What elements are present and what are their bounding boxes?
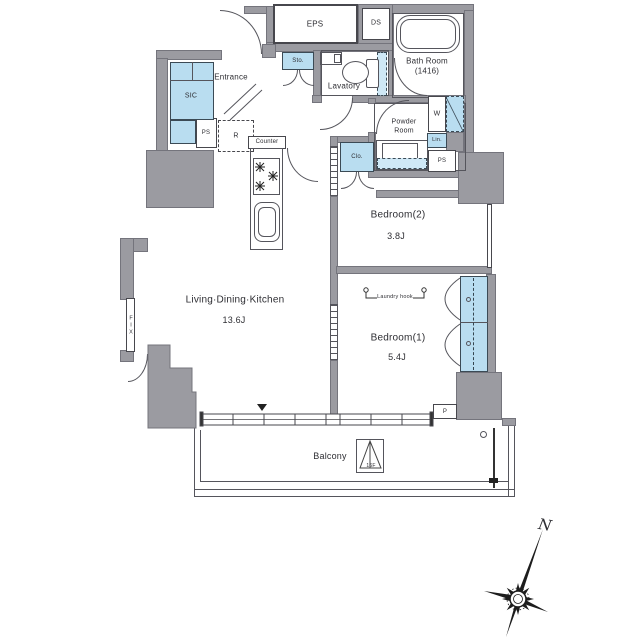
wall <box>330 196 338 306</box>
counter-label: Counter <box>256 139 279 145</box>
balcony-rail-line <box>194 496 515 497</box>
ps-label: PS <box>202 130 210 136</box>
closet2-door-arc <box>341 172 357 189</box>
balcony-window-band <box>200 412 433 426</box>
lavatory-faucet <box>334 54 341 63</box>
kitchen-sink-inner <box>258 207 276 237</box>
balcony-floor-line <box>200 481 509 482</box>
bedroom2-label: Bedroom(2) <box>371 210 426 221</box>
closet-fold-doors <box>445 278 460 366</box>
bath-size-label: (1416) <box>415 67 439 76</box>
entrance-label: Entrance <box>214 73 248 82</box>
bedroom1-size-label: 5.4J <box>388 352 406 362</box>
evac-hatch-label: 16F <box>366 463 375 469</box>
ldk-side-door-arc <box>128 354 148 382</box>
compass-icon <box>484 529 548 637</box>
bedroom2-size-label: 3.8J <box>387 231 405 241</box>
hall-door-arc <box>287 148 318 182</box>
balcony-edge <box>194 426 195 497</box>
powder-room-label: Powder <box>392 119 417 126</box>
bath-label: Bath Room <box>406 57 448 66</box>
wall <box>156 58 168 152</box>
balcony-rail-line <box>194 489 515 490</box>
stepped-wall <box>148 345 196 428</box>
entrance-step-lines <box>224 84 262 120</box>
balcony-edge <box>508 426 509 497</box>
washer-pan <box>446 96 464 132</box>
sic-label: SIC <box>185 93 197 100</box>
ps-label-2: PS <box>438 158 446 164</box>
wall-column <box>456 372 502 420</box>
compass-north-label: N <box>537 515 553 535</box>
bedroom2-window <box>487 204 492 268</box>
washer-label: W <box>434 111 441 118</box>
ldk-size-label: 13.6J <box>222 315 245 325</box>
bedroom1-label: Bedroom(1) <box>371 333 426 344</box>
wall <box>376 190 466 198</box>
balcony-drain <box>480 431 487 438</box>
storage-door-arc <box>299 70 314 86</box>
wall <box>146 150 214 208</box>
bathtub-inner <box>400 19 456 49</box>
lavatory-door-arc <box>320 98 353 130</box>
lavatory-label: Lavatory <box>328 82 360 91</box>
closet2-door-arc <box>358 172 374 189</box>
closet-divider <box>460 322 488 323</box>
floor-plan: EPS DS Bath Room (1416) Sto. Lavatory En… <box>0 0 640 639</box>
entrance-door-arc <box>220 10 262 54</box>
fix-window-label: FIX <box>128 316 134 337</box>
storage-door-arc <box>283 70 298 86</box>
sliding-door-bedroom2 <box>330 146 338 196</box>
laundry-hook-label: Laundry hook <box>377 294 413 300</box>
refrigerator-label: R <box>233 133 238 140</box>
wall <box>244 6 268 14</box>
closet-knob <box>466 341 471 346</box>
wall <box>502 418 516 426</box>
sic-divider <box>170 80 214 81</box>
sliding-door-bedroom1 <box>330 304 338 360</box>
wall <box>262 44 276 58</box>
wall <box>330 360 338 418</box>
balcony-edge <box>200 430 201 482</box>
balcony-entry-marker <box>257 404 267 411</box>
closet-knob <box>466 297 471 302</box>
ldk-label: Living·Dining·Kitchen <box>186 295 285 306</box>
vanity-lower <box>377 158 427 169</box>
closet-bedroom1 <box>460 276 488 372</box>
linen-label: Lin. <box>432 137 442 143</box>
eps-label: EPS <box>307 20 324 29</box>
ds-label: DS <box>371 20 381 27</box>
wall <box>336 266 492 274</box>
sic-closet-lower <box>170 120 196 144</box>
wall <box>120 238 134 300</box>
balcony-label: Balcony <box>313 451 346 461</box>
stove <box>253 158 280 195</box>
balcony-edge <box>514 426 515 497</box>
powder-room-label-2: Room <box>394 128 413 135</box>
closet-rail <box>473 278 474 370</box>
p-label: P <box>443 409 447 415</box>
storage-label: Sto. <box>292 58 303 64</box>
sic-divider <box>192 62 193 80</box>
closet-label: Clo. <box>351 154 362 160</box>
balcony-drain-mark <box>489 478 498 483</box>
